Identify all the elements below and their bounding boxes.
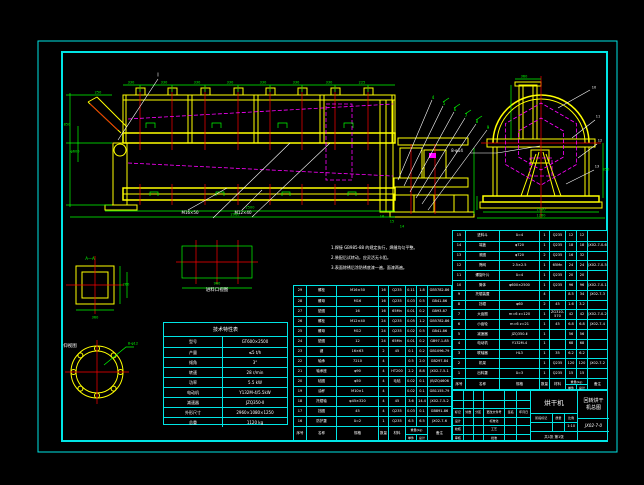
table-cell: HL3 [499,350,539,359]
table-cell: φ720 [499,252,539,261]
table-cell: 32 [576,252,587,261]
table-cell: 垫圈 [306,307,336,316]
table-cell [549,291,565,300]
drawing-label: 10 [592,86,596,90]
table-cell [587,350,607,359]
table-cell: 16 [378,286,388,296]
table-cell: GB93-87 [427,307,451,316]
table-row: 产量≤5 t/h [164,347,287,357]
table-cell: 垫圈 [306,337,336,346]
table-cell: Q235 [388,417,405,426]
cad-drawing-sheet: 330330330330330330330225250850φ600250029… [0,0,644,485]
table-cell [463,418,473,426]
bom-header-spec: 规格 [336,427,378,441]
table-cell: 20 [565,271,576,280]
bom-table-left: 29螺栓M16×5016Q2350.111.8GB5782-8628螺母M161… [293,285,452,441]
table-cell: JB/ZQ4606 [427,377,451,386]
table-cell [587,330,607,339]
table-cell: 16 [378,307,388,316]
table-row: 13滚圈φ7202Q2351632 [453,251,607,261]
table-cell [473,391,483,400]
table-row: 5减速器JZQ350-Ⅱ15656 [453,329,607,339]
table-cell: 0.1 [416,387,427,396]
table-cell: GB891-86 [427,407,451,416]
drawing-label: 330 [293,81,300,85]
table-cell: δ=4 [499,231,539,241]
table-cell: 4 [378,367,388,376]
table-cell [473,401,483,409]
table-cell: 13 [453,252,465,261]
table-row: 16防护罩δ=21Q2356.56.5JX02-7-6 [294,416,451,426]
table-cell: 6.5 [405,417,416,426]
table-cell: δ=3 [499,369,539,378]
table-cell: 挡圈 [306,407,336,416]
table-cell: 96 [565,281,576,290]
drawing-title-box: 回转烘干 机总图 [578,391,609,419]
table-cell: 1 [539,359,549,368]
table-cell [388,387,405,396]
table-cell: 17 [294,407,306,416]
table-cell: 10 [453,281,465,290]
table-cell: 34 [576,291,587,300]
tech-table-rows: 型号GT600×2500产量≤5 t/h倾角3°转速28 r/min功率5.5 … [164,337,287,427]
table-cell [463,426,473,434]
table-cell: 7 [453,310,465,319]
table-cell [453,391,463,400]
table-cell: 6.5 [416,417,427,426]
table-cell: 1 [539,271,549,280]
title-block-bottom-cell [578,432,609,442]
table-cell: JX02-7-4 [587,320,607,329]
table-cell [388,357,405,366]
title-block: 标记处数分区更改文件号签名年月日设计标准化校核工艺审核批准 烘干机 阶段标记 质… [452,390,608,441]
table-cell: 设计 [453,418,463,426]
table-cell [499,291,539,300]
drawing-label: 13 [595,165,599,169]
table-cell: Q235 [388,286,405,296]
table-row: 10筒体φ600×25001Q2359696JX02-7-0-1 [453,280,607,290]
table-cell: 12 [565,231,576,241]
bom-left-header: 序号 名称 规格 数量 材料 重量(kg) 单件 总计 备注 [294,426,451,441]
table-row: 6小齿轮m=6 z=211456.86.8JX02-7-4 [453,319,607,329]
drawing-label: M16×50 [182,211,199,215]
table-cell [587,231,607,241]
table-cell: 24 [378,337,388,346]
table-cell: 9 [453,291,465,300]
table-cell: 挡辊 [465,301,499,310]
table-row: 11螺旋叶片δ=41Q2352020 [453,270,607,280]
table-row: 3联轴器HL31356.26.2 [453,349,607,359]
table-cell: 6.8 [576,320,587,329]
table-row: 1出料罩δ=31Q2351515 [453,368,607,378]
table-cell: Q235 [549,369,565,378]
table-cell: 120 [576,359,587,368]
table-cell: 15 [453,231,465,241]
bom-header-unit-weight: 单件 [406,435,416,442]
table-cell: 1 [539,310,549,319]
table-cell: 0.02 [405,327,416,336]
table-row: 14端盖φ7201Q2351818JX02-7-0-6 [453,241,607,251]
table-cell: 120 [565,359,576,368]
table-cell [473,426,483,434]
table-cell: 筛网 [465,261,499,270]
table-cell: 键 [306,347,336,356]
note-line: 2.装配后试转动，应灵活无卡阻。 [331,253,451,263]
table-cell: Q235 [549,271,565,280]
drawing-label: 4 [432,96,435,100]
stage-mark-label: 阶段标记 [531,414,552,422]
table-cell: 3.2 [576,301,587,310]
table-cell: 68 [576,340,587,349]
table-cell: 1 [539,340,549,349]
table-cell: 机架 [465,359,499,368]
table-cell [516,435,530,443]
table-cell [463,401,473,409]
table-cell: 12 [336,337,378,346]
drawing-title-line1: 回转烘干 [583,398,603,405]
bom-header-no: 序号 [294,427,306,441]
table-cell: 0.1 [416,407,427,416]
drawing-label: 250 [95,91,102,95]
table-cell: 24 [378,327,388,336]
table-cell: 15 [565,369,576,378]
table-cell: φ600×2500 [499,281,539,290]
drawing-label: φ600 [71,150,80,154]
table-cell: Q235 [388,327,405,336]
table-cell: 标记 [453,409,463,417]
table-cell: 2 [453,359,465,368]
table-cell [473,435,483,443]
drawing-label: 7 [465,114,468,118]
table-cell: Y132M-4 [499,340,539,349]
table-cell: 15 [576,369,587,378]
table-cell: 20 [294,377,306,386]
bom-left-rows: 29螺栓M16×5016Q2350.111.8GB5782-8628螺母M161… [294,286,451,426]
table-cell: 0.1 [416,377,427,386]
table-cell: 2 [378,347,388,356]
table-cell: 功率 [164,378,222,387]
table-cell: 28 r/min [222,368,287,377]
drawing-label: M12×40 [235,211,252,215]
table-row: 转速28 r/min [164,367,287,377]
table-cell: 螺栓 [306,317,336,326]
table-cell: GB297-84 [427,357,451,366]
table-cell: φ720 [499,242,539,251]
table-row: 22轴承721040.52.0GB297-84 [294,356,451,366]
table-row: 29螺栓M16×5016Q2350.111.8GB5782-86 [294,286,451,296]
table-row: 17挡圈454Q2350.030.1GB891-86 [294,406,451,416]
drawing-label: 850 [603,168,610,172]
drawing-label: 进料口视图 [206,289,229,294]
table-cell: 电动机 [465,340,499,349]
table-cell: 24 [565,261,576,270]
table-row [453,391,530,400]
table-cell: M16 [336,297,378,306]
technical-notes: 1.焊接 GB985-88 的规定执行，焊缝均匀平整。2.装配后试转动，应灵活无… [331,243,451,273]
table-cell: JX02-7-6 [427,417,451,426]
drawing-label: 5 [443,102,446,106]
table-cell: 1 [539,350,549,359]
table-cell: 14.4 [416,397,427,406]
drawing-label: 330 [194,81,201,85]
table-cell: 0.05 [405,317,416,326]
drawing-label: 360 [521,75,528,79]
table-cell [504,391,516,400]
table-cell: 托辊轴 [306,397,336,406]
table-row: 23键16×632450.10.2GB1096-79 [294,346,451,356]
table-cell: 14 [453,242,465,251]
tech-characteristics-table: 技术特性表 型号GT600×2500产量≤5 t/h倾角3°转速28 r/min… [163,322,288,425]
table-cell: ZG310-570 [549,310,565,319]
table-cell: 1120 kg [222,418,287,427]
table-cell [473,418,483,426]
table-cell: 1.6 [565,301,576,310]
drawing-label: 6 [454,108,457,112]
table-cell: 65Mn [388,307,405,316]
table-cell: 16 [336,307,378,316]
table-cell: 总重 [164,418,222,427]
table-cell [483,391,505,400]
table-cell: δ=4 [499,271,539,280]
table-cell: 6.2 [576,350,587,359]
table-cell: JZQ350-Ⅱ [499,330,539,339]
table-cell: 轴承 [306,357,336,366]
table-cell: δ=2 [336,417,378,426]
table-cell: 0.03 [405,297,416,306]
table-cell: 4 [378,377,388,386]
table-cell: 1 [539,242,549,251]
table-cell: 1 [539,261,549,270]
table-cell [587,340,607,349]
table-cell: φ90 [336,367,378,376]
table-cell [504,418,516,426]
table-cell: GB97.1-85 [427,337,451,346]
bom-header-weight: 重量(kg) [406,427,427,435]
table-cell: JX02-7-0-2 [587,310,607,319]
table-cell: 18 [565,242,576,251]
table-cell: 26 [294,317,306,326]
table-cell: 螺母 [306,297,336,306]
table-cell: 0.11 [405,286,416,296]
bom-header-qty: 数量 [378,427,388,441]
bom-right-header: 序号 名称 规格 数量 材料 重量(kg) 单件 总计 备注 [453,378,607,391]
table-cell: 20 [576,271,587,280]
table-cell: 0.2 [416,307,427,316]
table-cell [587,369,607,378]
table-cell: 毛毡 [388,377,405,386]
drawing-label: 8-φ14 [451,149,463,153]
table-row: 审核批准 [453,434,530,443]
mass-label: 质量 [552,414,565,422]
table-cell: 0.02 [405,387,416,396]
table-cell: 螺母 [306,327,336,336]
table-cell: 审核 [453,435,463,443]
table-cell: 2960×1080×1250 [222,408,287,417]
table-row: 标记处数分区更改文件号签名年月日 [453,408,530,417]
table-cell: 28 [294,297,306,306]
table-cell: 1 [539,320,549,329]
table-cell: ≤5 t/h [222,348,287,357]
bom-table-right: 15进料斗δ=41Q235121214端盖φ7201Q2351818JX02-7… [452,230,608,390]
drawing-label: 14 [400,225,404,229]
table-cell: 65Mn [549,261,565,270]
table-cell: Y132M-4/5.5kW [222,388,287,397]
table-cell: 12 [576,231,587,241]
drawing-label: 360 [92,316,99,320]
table-row: 7大齿圈m=6 z=1201ZG310-5704242JX02-7-0-2 [453,309,607,319]
table-cell [499,359,539,368]
table-cell: 出料罩 [465,369,499,378]
table-cell: 27 [294,307,306,316]
table-cell: 4 [378,357,388,366]
drawing-label: 8-φ12 [128,342,138,346]
table-cell [463,391,473,400]
table-cell: 29 [294,286,306,296]
table-cell: 工艺 [483,426,505,434]
table-cell: 0.03 [405,407,416,416]
table-cell: 4 [453,340,465,349]
table-cell: 23 [294,347,306,356]
table-cell: m=6 z=21 [499,320,539,329]
table-cell: 螺旋叶片 [465,271,499,280]
table-cell: 7210 [336,357,378,366]
table-cell: Q235 [388,297,405,306]
table-cell: JX02-7-3 [587,291,607,300]
drawing-label: 330 [260,81,267,85]
drawing-label: 330 [227,81,234,85]
table-cell: 45 [388,347,405,356]
table-cell: 21 [294,367,306,376]
table-cell: 19 [294,387,306,396]
table-cell: 端盖 [465,242,499,251]
table-row: 18托辊轴φ45×3204453.614.4JX02-7-5-2 [294,396,451,406]
table-cell: 1 [453,369,465,378]
table-cell: 联轴器 [465,350,499,359]
table-cell: 3 [453,350,465,359]
table-cell: 4 [539,291,549,300]
table-row: 外形尺寸2960×1080×1250 [164,407,287,417]
table-cell: 56 [576,330,587,339]
table-cell: Q235 [549,281,565,290]
table-cell: 24 [294,337,306,346]
table-row: 型号GT600×2500 [164,337,287,347]
table-cell: 筒体 [465,281,499,290]
table-cell: Q235 [549,359,565,368]
drawing-label: 850 [64,123,71,127]
table-cell: 0.2 [416,337,427,346]
drawing-label: A—A [85,257,94,261]
table-cell: 11 [453,271,465,280]
table-cell: 2.2 [405,367,416,376]
bom-header-name: 名称 [306,427,336,441]
table-cell: 1 [539,369,549,378]
drawing-number: JX02-7-0 [578,419,609,432]
table-cell: 型号 [164,337,222,347]
sheet-count: 共1张 第1张 [531,432,578,442]
table-cell: Q235 [549,231,565,241]
table-cell: 8.5 [565,291,576,300]
table-cell: 倾角 [164,358,222,367]
table-cell: 3° [222,358,287,367]
table-row: 28螺母M1616Q2350.030.5GB41-86 [294,296,451,306]
table-cell: 8 [453,301,465,310]
drawing-label: 225 [359,81,366,85]
table-cell: 1 [539,231,549,241]
table-row: 总重1120 kg [164,417,287,427]
table-cell: 年月日 [516,409,530,417]
table-row: 12筛网2.5×2.5165Mn2424JX02-7-0-5 [453,260,607,270]
table-cell: 24 [378,317,388,326]
table-cell: 25 [294,327,306,336]
table-row: 19油杯M10×140.020.1GB1155-79 [294,386,451,396]
table-cell: 电动机 [164,388,222,397]
table-cell [504,435,516,443]
table-row: 25螺母M1224Q2350.020.5GB41-86 [294,326,451,336]
table-cell: Q235 [388,407,405,416]
table-cell: 0.5 [416,327,427,336]
table-cell [549,330,565,339]
table-cell: 42 [576,310,587,319]
table-cell: 0.5 [405,357,416,366]
table-cell: Q235 [549,242,565,251]
table-cell: GB41-86 [427,297,451,306]
table-cell: 轴承座 [306,367,336,376]
table-cell: 45 [549,301,565,310]
table-cell: 16 [294,417,306,426]
table-row: 21轴承座φ904HT2002.28.8JX02-7-5-1 [294,366,451,376]
table-cell: 校核 [453,426,463,434]
table-cell: 0.01 [405,337,416,346]
table-cell: 减速器 [465,330,499,339]
table-row: 电动机Y132M-4/5.5kW [164,387,287,397]
table-cell: JX02-7-5-2 [427,397,451,406]
table-cell [549,340,565,349]
drawing-label: 12 [598,139,602,143]
table-cell: Q235 [549,252,565,261]
table-cell: GB1155-79 [427,387,451,396]
table-cell: 4 [378,397,388,406]
table-row: 9托辊装置48.534JX02-7-3 [453,290,607,300]
table-cell [453,401,463,409]
table-cell: 4 [378,407,388,416]
table-cell [587,252,607,261]
table-cell: 18 [294,397,306,406]
drawing-label: 11 [596,115,600,119]
table-row: 8挡辊φ602451.63.2 [453,300,607,310]
table-cell: 3.6 [405,397,416,406]
drawing-label: 330 [128,81,135,85]
table-cell: 油杯 [306,387,336,396]
table-cell: JX02-7-0-5 [587,261,607,270]
table-cell: 批准 [483,435,505,443]
drawing-label: Ⅰ [157,74,158,79]
table-cell: 0.02 [405,377,416,386]
table-cell [483,401,505,409]
table-cell: 16×63 [336,347,378,356]
table-cell: 托辊装置 [465,291,499,300]
table-cell: M12 [336,327,378,336]
table-cell: φ60 [499,301,539,310]
scale-label: 比例 [564,414,577,422]
table-cell: 6.8 [565,320,576,329]
drawing-label: 15 [390,220,394,224]
table-cell: 减速器 [164,398,222,407]
table-cell: 8.8 [416,367,427,376]
table-cell: 0.5 [416,297,427,306]
table-row: 设计标准化 [453,417,530,426]
table-cell: φ50 [336,377,378,386]
table-row: 4电动机Y132M-416868 [453,339,607,349]
